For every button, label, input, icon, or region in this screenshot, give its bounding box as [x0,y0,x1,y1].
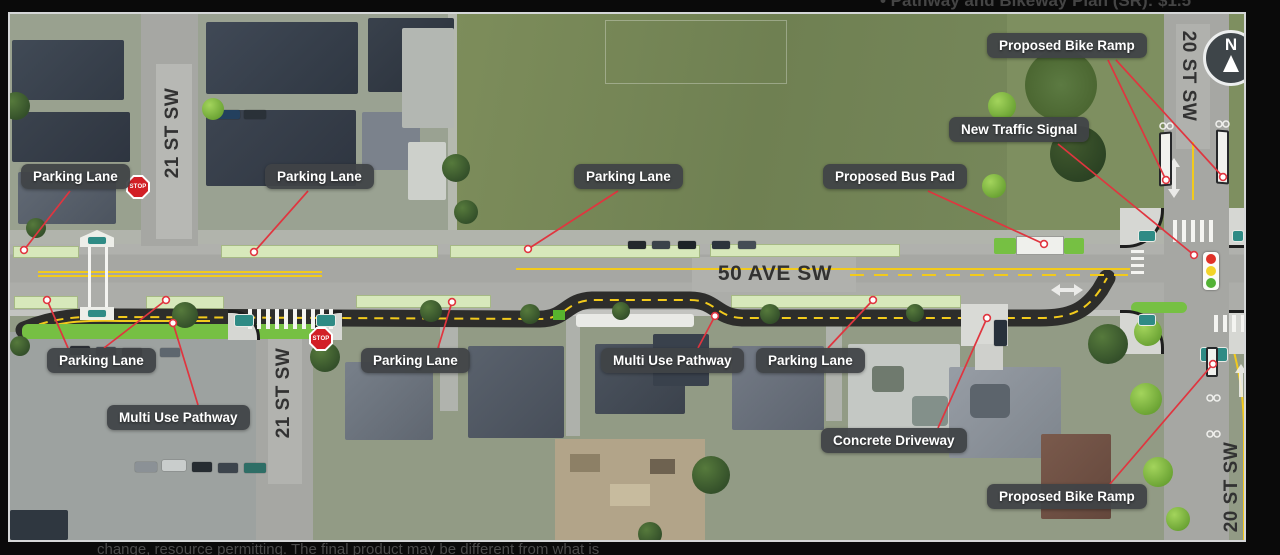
north-arrow-icon [1223,55,1239,72]
annotation-concrete-driveway: Concrete Driveway [821,428,967,453]
annotation-multi-use-pathway-west: Multi Use Pathway [107,405,250,430]
annotation-parking-lane-n2: Parking Lane [265,164,374,189]
aerial-plan-map: STOP STOP 50 A [8,12,1246,542]
annotation-parking-lane-nw: Parking Lane [21,164,130,189]
annotation-parking-lane-sw: Parking Lane [47,348,156,373]
top-caption: • Pathway and Bikeway Plan (SR): $1.5 [880,0,1191,11]
annotation-proposed-bike-ramp-south: Proposed Bike Ramp [987,484,1147,509]
annotation-parking-lane-n3: Parking Lane [574,164,683,189]
annotation-proposed-bike-ramp-north: Proposed Bike Ramp [987,33,1147,58]
annotation-parking-lane-s3: Parking Lane [756,348,865,373]
page: { "page": { "top_caption": "• Pathway an… [0,0,1280,555]
annotation-multi-use-pathway-center: Multi Use Pathway [601,348,744,373]
annotation-proposed-bus-pad: Proposed Bus Pad [823,164,967,189]
annotation-new-traffic-signal: New Traffic Signal [949,117,1089,142]
leader-lines-layer [10,14,1244,540]
north-arrow-label: N [1225,35,1237,55]
annotation-parking-lane-s2: Parking Lane [361,348,470,373]
bottom-caption: change, resource permitting. The final p… [97,541,599,555]
